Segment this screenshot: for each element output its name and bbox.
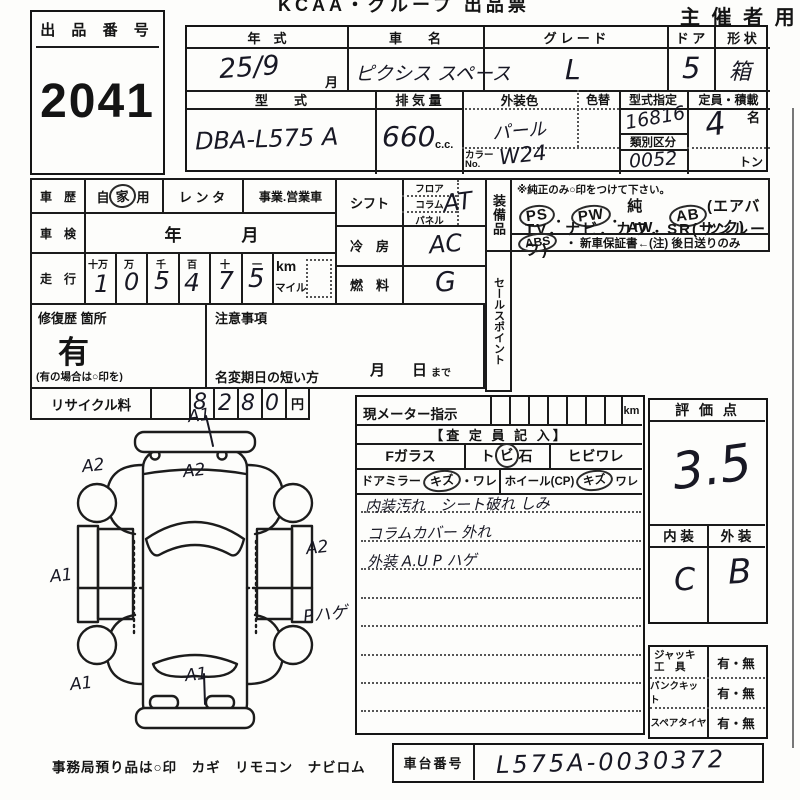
divider [490, 397, 492, 424]
stone-chip-option: トビ石 [464, 443, 549, 468]
capacity-label: 定員・積載 [687, 91, 770, 108]
inspection-date: 年 月 [84, 214, 339, 252]
displacement-unit: c.c. [435, 139, 453, 151]
spare-tire-label: スペアタイヤ [650, 707, 707, 737]
sheet-title: KCAA・グループ 出品票 [278, 0, 530, 17]
doors-value: 5 [682, 51, 700, 85]
equipment-label: 装備品 [487, 180, 512, 250]
chassis-number-box: 車台番号 L575A-0030372 [392, 743, 764, 783]
auction-number-value: 2041 [32, 56, 163, 146]
tools-box: ジャッキ工 具 有・無 パンクキット 有・無 スペアタイヤ 有・無 [648, 645, 768, 739]
divider [509, 397, 511, 424]
year-month-suffix: 月 [325, 72, 338, 91]
rule-line [361, 654, 641, 656]
deadline-day-label: 日 [412, 359, 427, 380]
inspection-row: 車 検 年 月 [30, 212, 337, 254]
fuel-label: 燃 料 [337, 265, 402, 303]
mileage-digit: 1 [94, 270, 109, 298]
mileage-digit: 0 [124, 268, 139, 296]
shift-value: AT [441, 186, 474, 217]
divider [209, 254, 211, 303]
mirror-crack-option: ・ワレ [461, 472, 497, 489]
mileage-digit: 5 [154, 266, 170, 295]
inspection-month-label: 月 [242, 221, 259, 246]
mileage-col-header: 十万 [88, 256, 108, 271]
divider [585, 397, 587, 424]
rule-line [361, 625, 641, 627]
vehicle-table: 年 式 車 名 グ レ ー ド ド ア 形 状 25/9 月 ピクシス スペース… [185, 25, 768, 172]
mirror-scratch-circled: キズ [422, 467, 462, 493]
repair-history-label: 修復歴 箇所 [38, 308, 107, 327]
interior-grade-value: C [673, 561, 697, 598]
divider [84, 254, 86, 303]
score-box: 評 価 点 3.5 内 装 外 装 C B [648, 398, 768, 624]
door-mirror-row: ドアミラー キズ ・ワレ [359, 468, 499, 493]
current-meter-label: 現メーター指示 [363, 403, 458, 423]
puncture-kit-label: パンクキット [650, 677, 707, 707]
door-mirror-label: ドアミラー [361, 472, 421, 489]
rule-line [361, 710, 641, 712]
grade-value: L [565, 53, 581, 86]
front-glass-label: Fガラス [357, 443, 464, 468]
mileage-digit: 5 [248, 264, 265, 294]
history-business-option: 事業.営業車 [242, 180, 339, 212]
caution-label: 注意事項 [215, 308, 267, 327]
model-value: DBA-L575 A [195, 123, 339, 156]
caution-box: 注意事項 名変期日の短い方 月 日 まで [205, 303, 485, 389]
crack-option: ヒビワレ [549, 443, 642, 468]
deadline-month-label: 月 [370, 359, 385, 380]
wheel-label: ホイール(CP) [505, 473, 575, 489]
year-value: 25/9 [218, 50, 281, 85]
deadline-until-label: まで [431, 364, 451, 379]
auction-number-label: 出 品 番 号 [36, 12, 159, 48]
shape-label: 形 状 [714, 28, 770, 46]
repair-history-value: 有 [58, 327, 89, 372]
aircon-label: 冷 房 [337, 225, 402, 265]
displacement-label: 排 気 量 [375, 91, 462, 108]
ton-label: トン [739, 153, 763, 170]
name-change-deadline-label: 名変期日の短い方 [215, 367, 319, 386]
car-name-label: 車 名 [347, 28, 483, 46]
exterior-label: 外 装 [707, 525, 765, 545]
shift-aircon-fuel-box: シフト フロア コラム パネル AT 冷 房 AC 燃 料 G [335, 178, 487, 305]
rule-line [361, 682, 641, 684]
interior-label: 内 装 [650, 525, 707, 545]
wheel-crack-option: ワレ [615, 473, 638, 489]
history-rental-option: レ ン タ [162, 180, 242, 212]
history-private-pre: 自 [96, 187, 109, 206]
auction-sheet: KCAA・グループ 出品票 主 催 者 用 出 品 番 号 2041 年 式 車… [0, 0, 800, 800]
divider [187, 47, 770, 49]
assessor-entry-header: 【査 定 員 記 入】 [357, 425, 642, 443]
shift-label: シフト [337, 180, 402, 225]
assessor-note: 内装汚れ シート破れ しみ [365, 492, 550, 516]
jack-tools-value: 有・無 [707, 647, 765, 677]
recolor-label: 色替 [577, 91, 619, 108]
meter-km-unit: km [621, 397, 642, 424]
class-division-value: 0052 [628, 147, 678, 172]
mileage-digit: 4 [184, 268, 200, 297]
mileage-label: 走 行 [32, 254, 84, 303]
fuel-value: G [434, 266, 457, 298]
assessor-box: 現メーター指示 km 【査 定 員 記 入】 Fガラス トビ石 ヒビワレ ドアミ… [355, 395, 645, 735]
divider [528, 397, 530, 424]
history-private-option: 自家用 [84, 180, 162, 212]
car-name-value: ピクシス スペース [355, 59, 511, 86]
stone-chip-post: 石 [519, 446, 533, 466]
history-private-post: 用 [137, 187, 150, 206]
equipment-box: 装備品 ※純正のみ○印をつけて下さい。 PS．PW．純AW．AB(エアバック) … [485, 178, 770, 252]
assessor-note: コラムカバー 外れ [367, 521, 492, 544]
equipment-line3: ABS ・ 新車保証書←(注) 後日送りのみ [512, 233, 768, 250]
mileage-mile-unit: マイル [275, 280, 307, 295]
aircon-value: AC [428, 229, 464, 260]
inspection-year-label: 年 [165, 221, 182, 246]
grade-label: グ レ ー ド [483, 28, 667, 46]
wheel-scratch-circled: キズ [575, 468, 614, 493]
mileage-digit: 7 [218, 266, 234, 295]
doors-label: ド ア [667, 28, 714, 46]
class-division-label: 類別区分 [619, 134, 687, 149]
chassis-number-value: L575A-0030372 [496, 745, 727, 779]
jack-tools-label: ジャッキ工 具 [654, 649, 695, 673]
stone-chip-pre: ト [481, 446, 495, 466]
paper-edge [792, 108, 794, 748]
car-top-view-diagram [30, 408, 350, 748]
assessor-note: 外装 A.U P ハゲ [367, 549, 477, 572]
shape-value: 箱 [729, 54, 751, 86]
divider [146, 254, 148, 303]
displacement-value: 660 [382, 120, 435, 153]
divider [272, 254, 274, 303]
repair-history-note: (有の場合は○印を) [36, 369, 123, 384]
color-no-value: W24 [498, 141, 548, 170]
capacity-unit: 名 [747, 107, 760, 126]
score-label: 評 価 点 [650, 400, 765, 422]
chassis-number-label: 車台番号 [394, 745, 475, 780]
mileage-km-unit: km [276, 258, 296, 274]
warranty-note: ・ 新車保証書←(注) 後日送りのみ [565, 235, 740, 251]
mileage-unit-checkbox [306, 259, 332, 298]
history-row: 車 歴 自家用 レ ン タ 事業.営業車 [30, 178, 337, 214]
divider [462, 108, 619, 110]
mileage-row: 走 行 十万 万 千 百 十 一 1 0 5 4 7 5 km マイル [30, 252, 337, 305]
model-label: 型 式 [187, 91, 375, 108]
puncture-kit-value: 有・無 [707, 677, 765, 707]
divider [604, 397, 606, 424]
year-label: 年 式 [187, 28, 347, 46]
score-value: 3.5 [668, 433, 755, 502]
stone-chip-circled: ビ [493, 442, 520, 470]
office-keep-note: 事務局預り品は○印 カギ リモコン ナビロム [52, 756, 366, 776]
divider [241, 254, 243, 303]
color-no-label: カラーNo. [465, 151, 494, 169]
divider [566, 397, 568, 424]
divider [687, 147, 770, 149]
wheel-row: ホイール(CP) キズ ワレ [501, 468, 642, 493]
auction-number-box: 出 品 番 号 2041 [30, 10, 165, 175]
divider [178, 254, 180, 303]
exterior-grade-value: B [727, 551, 752, 592]
inspection-label: 車 検 [32, 214, 84, 252]
rule-line [361, 597, 641, 599]
sales-point-label: セールスポイント [485, 250, 512, 392]
spare-tire-value: 有・無 [707, 707, 765, 737]
history-circled-value: 家 [108, 182, 138, 209]
divider [547, 397, 549, 424]
repair-history-box: 修復歴 箇所 有 (有の場合は○印を) [30, 303, 207, 389]
exterior-color-label: 外装色 [462, 91, 577, 108]
divider [115, 254, 117, 303]
history-label: 車 歴 [32, 180, 84, 212]
